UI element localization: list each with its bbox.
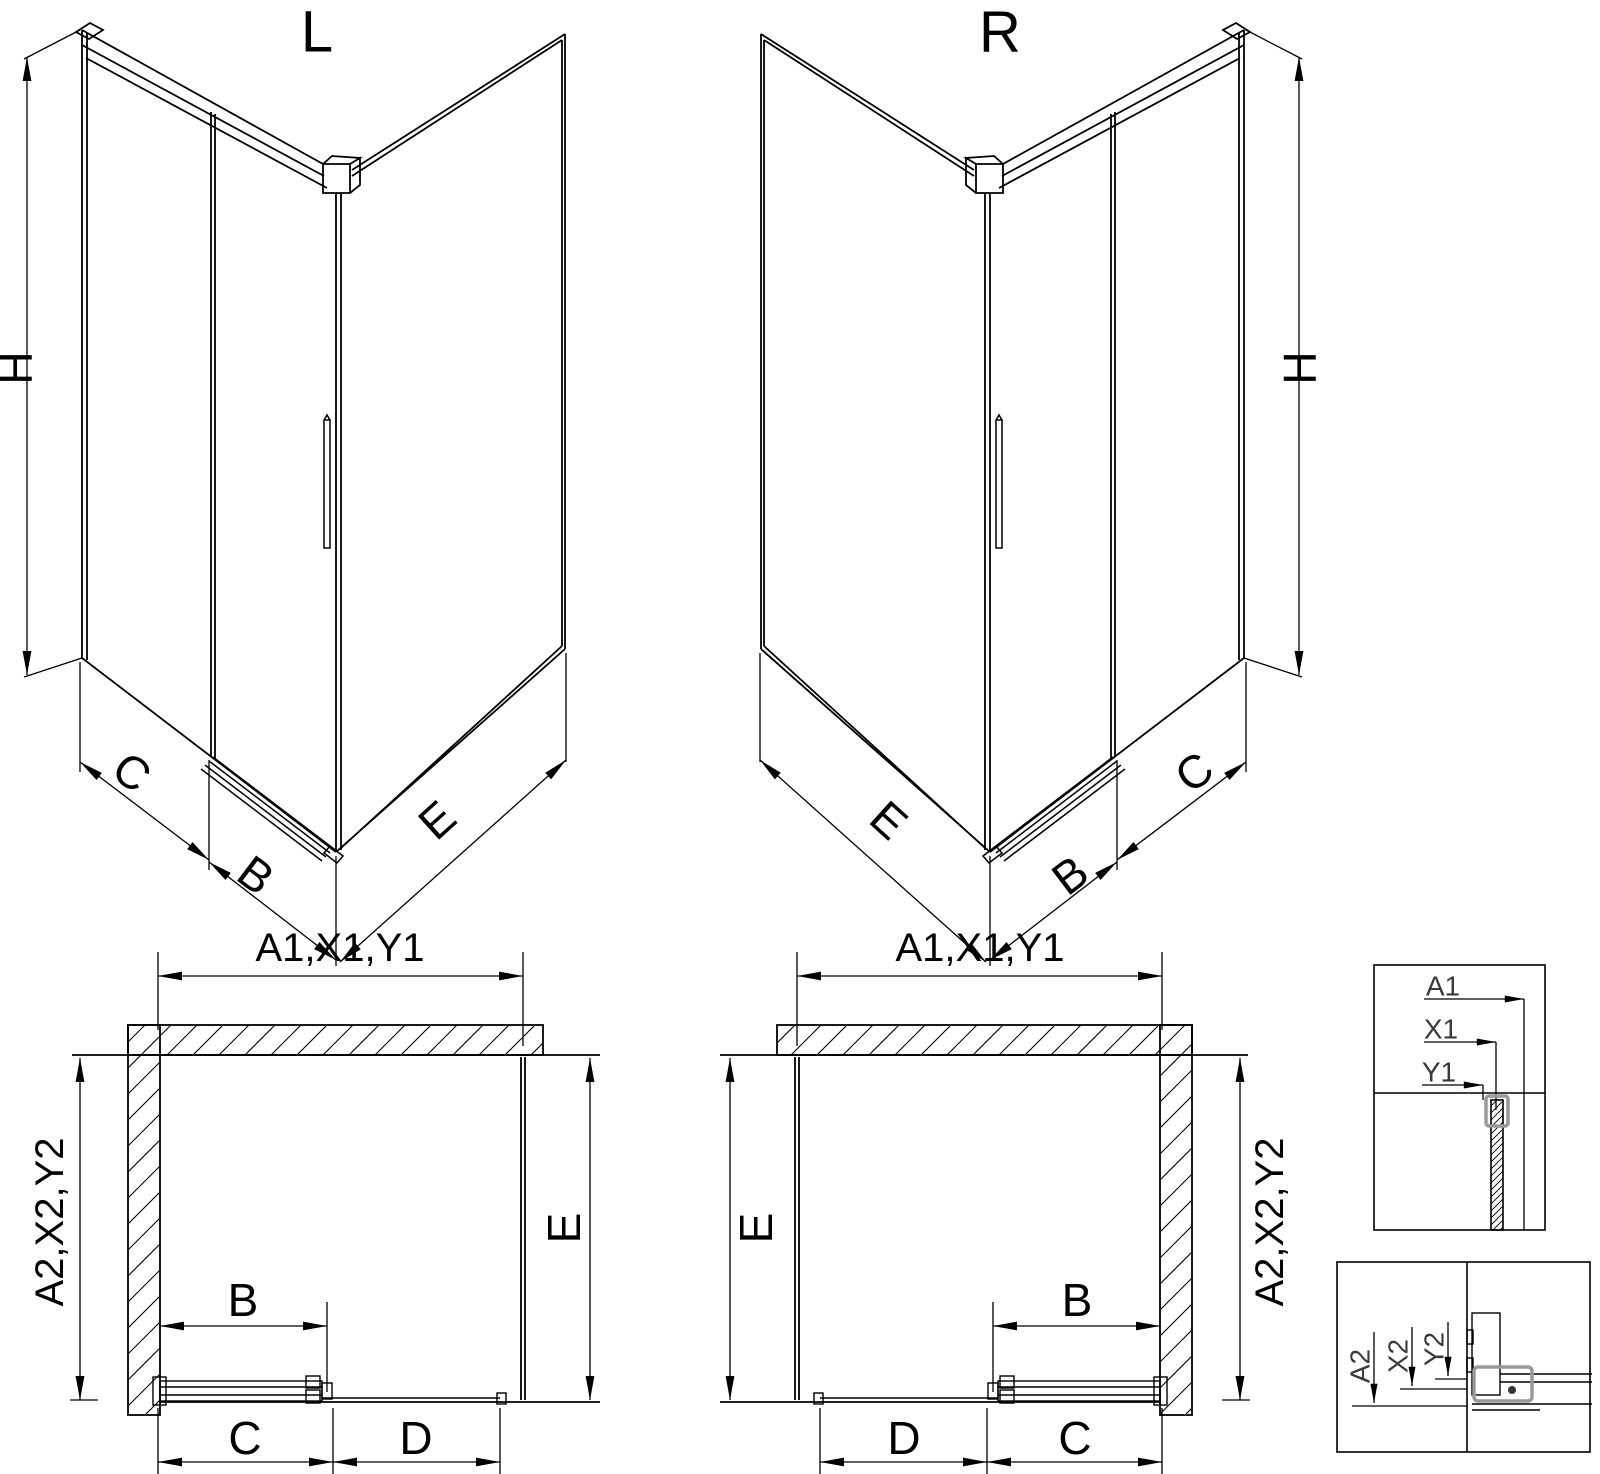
iso-view-right: R H C B E	[757, 0, 1326, 966]
iso-right-dim-e: E	[860, 790, 918, 849]
plan-right-dim-top: A1,X1,Y1	[895, 926, 1064, 970]
detail-bottom-label-a2: A2	[1345, 1349, 1376, 1383]
plan-right-dim-c: C	[1058, 1412, 1091, 1464]
plan-left-dim-d: D	[399, 1412, 432, 1464]
plan-right-dim-e: E	[730, 1213, 782, 1244]
plan-right-dim-d: D	[887, 1412, 920, 1464]
detail-roller-clamp	[1474, 1367, 1532, 1401]
wall-hatching	[129, 1026, 1191, 1414]
plan-left-dim-side: A2,X2,Y2	[28, 1137, 72, 1306]
schematic-canvas: L H C B E R H C B E A1,X1,Y1 A2,X2,Y2 B …	[0, 0, 1600, 1474]
detail-bottom-profile: A2 X2 Y2	[1337, 1262, 1592, 1452]
detail-roller-pin	[1508, 1386, 1516, 1394]
detail-top-label-y1: Y1	[1422, 1057, 1456, 1088]
plan-right-dim-side: A2,X2,Y2	[1248, 1137, 1292, 1306]
plan-view-right: A1,X1,Y1 A2,X2,Y2 B E C D	[720, 926, 1292, 1474]
iso-left-dim-c: C	[103, 741, 161, 803]
detail-top-profile: A1 X1 Y1	[1374, 965, 1545, 1230]
iso-view-left: L H C B E	[0, 0, 569, 966]
plan-view-left: A1,X1,Y1 A2,X2,Y2 B E C D	[28, 926, 600, 1474]
detail-top-frame	[1374, 965, 1545, 1230]
iso-left-linework	[23, 23, 569, 966]
iso-right-dim-h: H	[1274, 351, 1326, 384]
plan-right-dim-b: B	[1062, 1274, 1093, 1326]
iso-right-linework	[757, 23, 1303, 966]
iso-right-dim-c: C	[1165, 741, 1223, 803]
iso-left-dim-b: B	[228, 845, 284, 905]
plan-left-dim-c: C	[228, 1412, 261, 1464]
detail-glass-bar	[1491, 1100, 1503, 1230]
detail-top-label-x1: X1	[1424, 1014, 1458, 1045]
plan-left-dim-top: A1,X1,Y1	[255, 926, 424, 970]
detail-bottom-label-y2: Y2	[1419, 1332, 1450, 1366]
detail-top-label-a1: A1	[1426, 971, 1460, 1002]
technical-drawing-sheet: L H C B E R H C B E A1,X1,Y1 A2,X2,Y2 B …	[0, 0, 1600, 1474]
variant-title-left: L	[301, 0, 333, 65]
variant-title-right: R	[979, 0, 1021, 65]
iso-left-dim-h: H	[0, 351, 42, 384]
plan-left-dim-e: E	[538, 1213, 590, 1244]
detail-bottom-label-x2: X2	[1383, 1339, 1414, 1373]
plan-left-dim-b: B	[228, 1274, 259, 1326]
detail-door-profile	[1467, 1313, 1592, 1410]
iso-left-dim-e: E	[408, 790, 466, 849]
iso-right-dim-b: B	[1042, 845, 1098, 905]
